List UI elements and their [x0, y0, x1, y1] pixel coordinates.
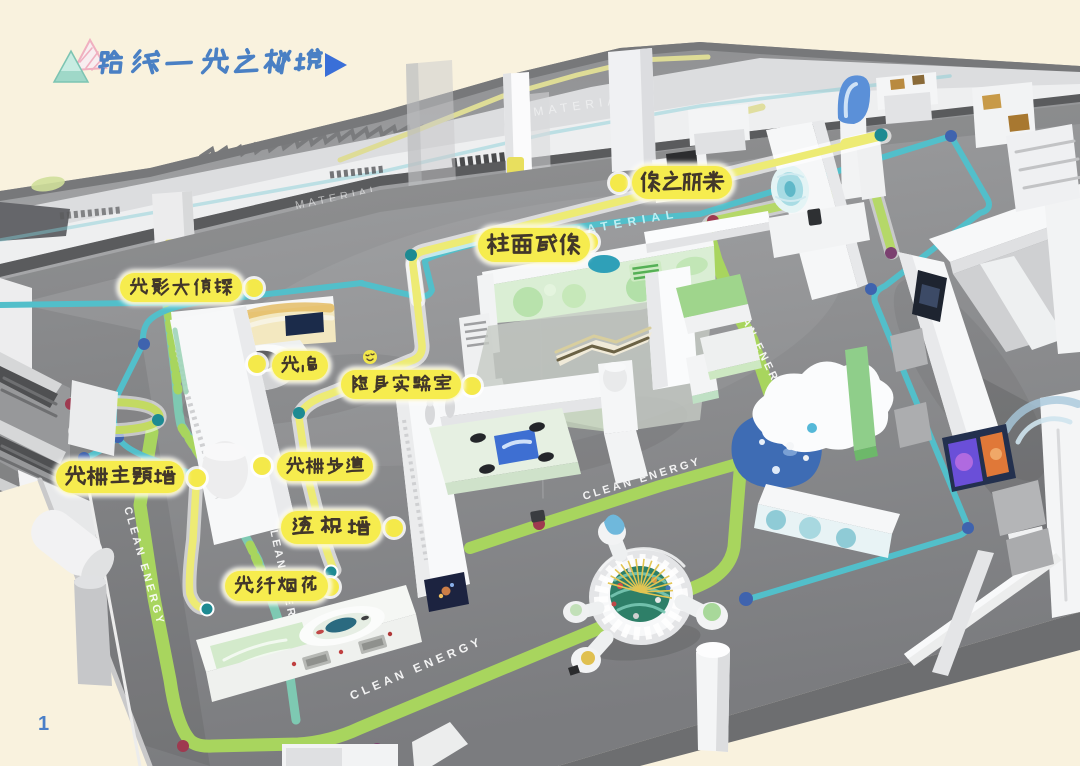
svg-text:1: 1 [38, 713, 49, 735]
